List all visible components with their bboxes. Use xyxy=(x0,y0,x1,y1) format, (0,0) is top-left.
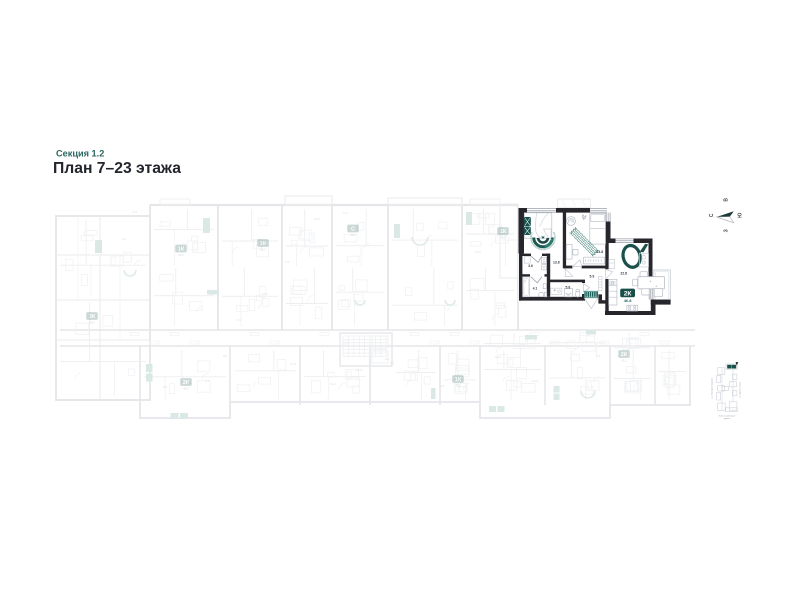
svg-text:15.6: 15.6 xyxy=(356,368,362,372)
svg-text:5.2: 5.2 xyxy=(237,318,242,322)
svg-text:Секция 1.2: Секция 1.2 xyxy=(56,148,104,158)
svg-text:16.2: 16.2 xyxy=(495,355,501,359)
svg-text:5.2: 5.2 xyxy=(163,385,168,389)
svg-text:1К: 1К xyxy=(178,247,185,253)
svg-text:1К: 1К xyxy=(455,377,462,383)
svg-text:45.2: 45.2 xyxy=(621,358,627,362)
svg-text:11.3: 11.3 xyxy=(475,250,481,254)
svg-text:3К: 3К xyxy=(89,314,96,320)
svg-text:14.8: 14.8 xyxy=(597,250,604,254)
svg-text:9.8: 9.8 xyxy=(223,354,228,358)
svg-text:45.2: 45.2 xyxy=(350,233,356,237)
svg-text:5.2: 5.2 xyxy=(285,260,290,264)
svg-text:1К: 1К xyxy=(500,229,507,235)
svg-text:План 7–23 этажа: План 7–23 этажа xyxy=(53,160,181,177)
svg-text:3.4: 3.4 xyxy=(596,354,601,358)
svg-text:5.2: 5.2 xyxy=(205,379,210,383)
svg-text:2К: 2К xyxy=(183,380,190,386)
svg-text:2К: 2К xyxy=(621,352,628,358)
svg-text:45.2: 45.2 xyxy=(89,320,95,324)
svg-text:5.9: 5.9 xyxy=(590,274,595,278)
svg-text:ул. Тимофея Чаркова: ул. Тимофея Чаркова xyxy=(711,377,714,399)
svg-text:9.8: 9.8 xyxy=(385,357,390,361)
svg-text:Ю: Ю xyxy=(738,213,744,218)
svg-text:45.2: 45.2 xyxy=(178,253,184,257)
svg-text:дорога: дорога xyxy=(724,418,731,420)
svg-text:4.1: 4.1 xyxy=(533,286,538,290)
svg-text:12.5: 12.5 xyxy=(314,217,320,221)
svg-text:11.3: 11.3 xyxy=(330,382,336,386)
svg-text:С: С xyxy=(709,213,715,217)
svg-text:5.8: 5.8 xyxy=(566,286,571,290)
svg-text:13.8: 13.8 xyxy=(553,261,560,265)
svg-text:В: В xyxy=(723,198,729,202)
svg-text:ул. Арктическая: ул. Арктическая xyxy=(739,382,742,397)
svg-text:46.8: 46.8 xyxy=(624,298,633,303)
svg-text:С: С xyxy=(351,227,355,233)
svg-text:15.6: 15.6 xyxy=(262,292,268,296)
svg-text:15.6: 15.6 xyxy=(290,362,296,366)
svg-text:45.2: 45.2 xyxy=(455,383,461,387)
svg-text:22.8: 22.8 xyxy=(620,272,627,276)
svg-text:16.2: 16.2 xyxy=(532,379,538,383)
svg-text:3.4: 3.4 xyxy=(390,361,395,365)
svg-text:45.2: 45.2 xyxy=(500,235,506,239)
svg-text:1К: 1К xyxy=(260,241,267,247)
svg-text:3.6: 3.6 xyxy=(528,264,533,268)
svg-text:З: З xyxy=(723,229,729,232)
svg-text:5.2: 5.2 xyxy=(133,210,138,214)
svg-text:45.2: 45.2 xyxy=(183,386,189,390)
svg-text:9.8: 9.8 xyxy=(440,384,445,388)
svg-text:5.2: 5.2 xyxy=(343,211,348,215)
svg-text:4.1: 4.1 xyxy=(122,237,127,241)
svg-text:45.2: 45.2 xyxy=(260,247,266,251)
svg-text:2К: 2К xyxy=(624,290,633,297)
